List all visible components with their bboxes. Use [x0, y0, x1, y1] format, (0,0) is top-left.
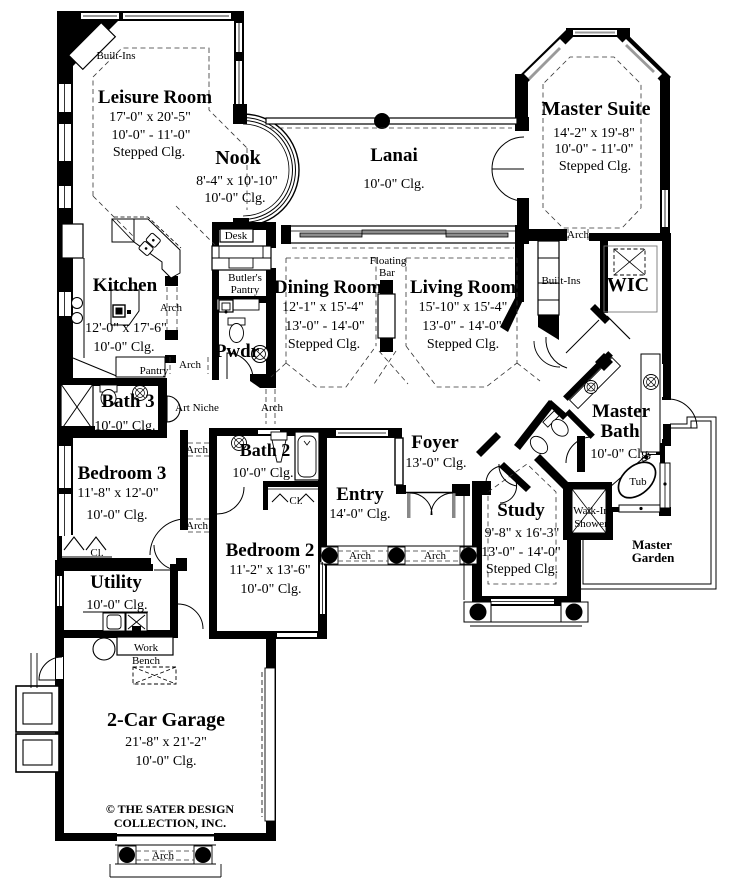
- svg-text:14'-0" Clg.: 14'-0" Clg.: [329, 507, 390, 522]
- svg-text:Study: Study: [497, 500, 545, 521]
- svg-text:13'-0" - 14'-0": 13'-0" - 14'-0": [422, 319, 501, 334]
- svg-text:13'-0" - 14'-0": 13'-0" - 14'-0": [285, 319, 364, 334]
- svg-text:11'-2" x 13'-6": 11'-2" x 13'-6": [229, 563, 310, 578]
- svg-text:Arch: Arch: [160, 302, 182, 314]
- svg-text:2-Car Garage: 2-Car Garage: [107, 709, 225, 731]
- svg-text:COLLECTION, INC.: COLLECTION, INC.: [114, 816, 226, 830]
- svg-text:10'-0" Clg.: 10'-0" Clg.: [240, 582, 301, 597]
- svg-text:Stepped Clg.: Stepped Clg.: [427, 337, 499, 352]
- svg-text:11'-8" x 12'-0": 11'-8" x 12'-0": [77, 486, 158, 501]
- svg-text:Pantry: Pantry: [231, 284, 260, 296]
- svg-text:15'-10" x 15'-4": 15'-10" x 15'-4": [419, 300, 508, 315]
- svg-text:Utility: Utility: [90, 572, 142, 593]
- svg-text:Work: Work: [134, 642, 159, 654]
- svg-text:Master: Master: [592, 401, 651, 422]
- svg-text:12'-1" x 15'-4": 12'-1" x 15'-4": [282, 300, 364, 315]
- svg-text:Arch: Arch: [424, 550, 446, 562]
- svg-text:10'-0" Clg.: 10'-0" Clg.: [86, 508, 147, 523]
- svg-text:Walk-In: Walk-In: [573, 505, 609, 517]
- svg-text:© THE SATER DESIGN: © THE SATER DESIGN: [106, 802, 235, 816]
- svg-text:10'-0" Clg.: 10'-0" Clg.: [135, 754, 196, 769]
- svg-text:Bath 2: Bath 2: [240, 440, 291, 460]
- svg-text:WIC: WIC: [607, 274, 649, 296]
- svg-text:14'-2" x 19'-8": 14'-2" x 19'-8": [553, 126, 635, 141]
- svg-text:Arch: Arch: [349, 550, 371, 562]
- svg-text:Bath 3: Bath 3: [101, 391, 154, 412]
- svg-text:Entry: Entry: [336, 484, 384, 505]
- svg-text:Stepped Clg.: Stepped Clg.: [559, 159, 631, 174]
- svg-text:10'-0" Clg.: 10'-0" Clg.: [232, 466, 293, 481]
- svg-text:Butler's: Butler's: [228, 272, 262, 284]
- svg-text:Arch: Arch: [186, 520, 208, 532]
- svg-text:12'-0" x 17'-6": 12'-0" x 17'-6": [85, 321, 167, 336]
- svg-text:17'-0" x 20'-5": 17'-0" x 20'-5": [109, 110, 191, 125]
- svg-text:Leisure Room: Leisure Room: [98, 87, 212, 108]
- svg-text:Cl.: Cl.: [90, 547, 103, 559]
- svg-text:Art Niche: Art Niche: [175, 402, 219, 414]
- svg-text:Master Suite: Master Suite: [541, 98, 650, 120]
- svg-text:9'-8" x 16'-3": 9'-8" x 16'-3": [485, 526, 560, 541]
- svg-text:Bedroom 3: Bedroom 3: [78, 463, 167, 484]
- svg-text:Floating: Floating: [370, 255, 407, 267]
- svg-text:21'-8" x 21'-2": 21'-8" x 21'-2": [125, 735, 207, 750]
- svg-text:Dining Room: Dining Room: [274, 277, 382, 298]
- svg-text:Stepped Clg.: Stepped Clg.: [113, 145, 185, 160]
- svg-text:Arch: Arch: [567, 229, 589, 241]
- svg-text:Lanai: Lanai: [370, 145, 418, 166]
- svg-text:Built-Ins: Built-Ins: [96, 50, 135, 62]
- svg-text:Shower: Shower: [574, 518, 608, 530]
- svg-text:Tub: Tub: [629, 476, 647, 488]
- svg-text:Foyer: Foyer: [411, 432, 459, 453]
- svg-text:10'-0" Clg.: 10'-0" Clg.: [590, 447, 651, 462]
- svg-text:10'-0" Clg.: 10'-0" Clg.: [94, 419, 155, 434]
- svg-text:10'-0" - 11'-0": 10'-0" - 11'-0": [112, 128, 191, 143]
- svg-text:Pwdr: Pwdr: [215, 341, 260, 362]
- svg-text:Nook: Nook: [215, 147, 261, 169]
- svg-text:Arch: Arch: [186, 444, 208, 456]
- svg-text:Stepped Clg.: Stepped Clg.: [486, 562, 558, 577]
- svg-text:Bath: Bath: [600, 421, 640, 442]
- svg-text:Built-Ins: Built-Ins: [541, 275, 580, 287]
- svg-text:Living Room: Living Room: [410, 277, 516, 298]
- svg-text:Arch: Arch: [152, 850, 174, 862]
- svg-text:Bedroom 2: Bedroom 2: [226, 540, 315, 561]
- svg-text:Desk: Desk: [225, 230, 248, 242]
- svg-text:10'-0" - 11'-0": 10'-0" - 11'-0": [555, 142, 634, 157]
- svg-text:13'-0" - 14'-0": 13'-0" - 14'-0": [481, 545, 560, 560]
- svg-text:10'-0" Clg.: 10'-0" Clg.: [363, 177, 424, 192]
- svg-text:10'-0" Clg.: 10'-0" Clg.: [86, 598, 147, 613]
- svg-text:Bench: Bench: [132, 655, 161, 667]
- svg-text:Pantry: Pantry: [140, 365, 169, 377]
- svg-text:Arch: Arch: [179, 359, 201, 371]
- svg-text:8'-4" x 10'-10": 8'-4" x 10'-10": [196, 174, 278, 189]
- svg-text:Bar: Bar: [379, 267, 395, 279]
- svg-text:10'-0" Clg.: 10'-0" Clg.: [204, 191, 265, 206]
- svg-text:10'-0" Clg.: 10'-0" Clg.: [93, 340, 154, 355]
- svg-text:Arch: Arch: [261, 402, 283, 414]
- svg-text:Stepped Clg.: Stepped Clg.: [288, 337, 360, 352]
- svg-text:Garden: Garden: [632, 550, 675, 565]
- svg-text:13'-0" Clg.: 13'-0" Clg.: [405, 456, 466, 471]
- svg-text:Cl.: Cl.: [289, 495, 302, 507]
- svg-text:Kitchen: Kitchen: [93, 275, 158, 296]
